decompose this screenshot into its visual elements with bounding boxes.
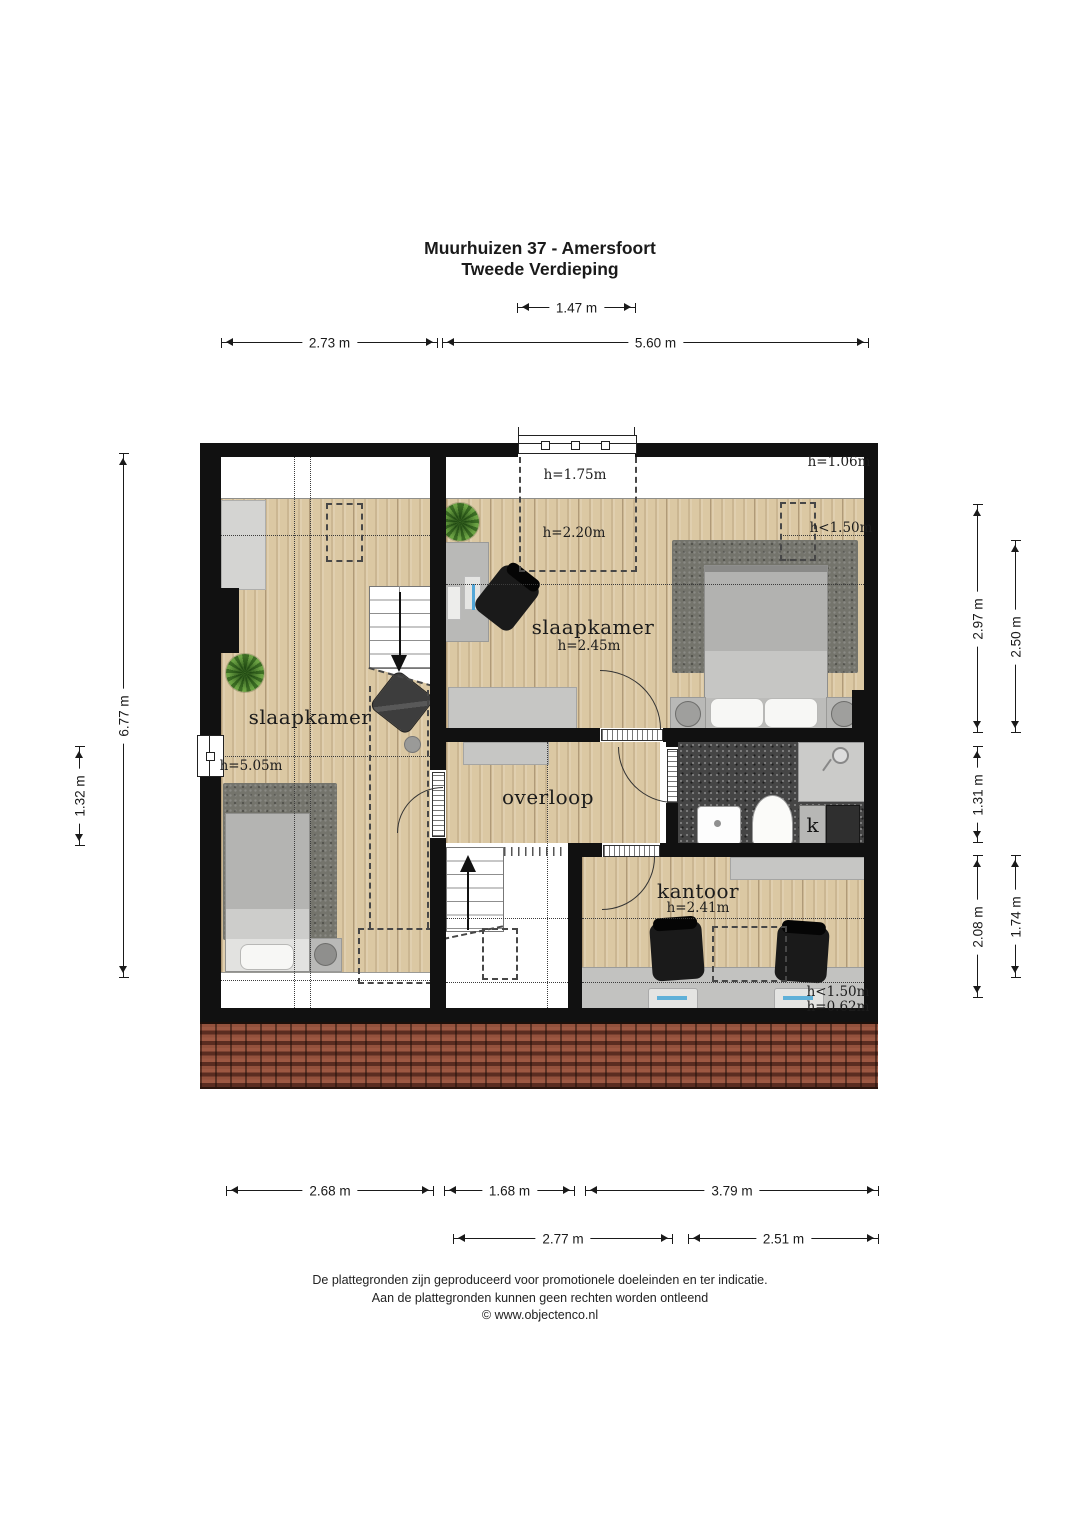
stairs-down-arrow-line [399,592,401,656]
dimension-bottom-stairwell: 1.68 m [445,1190,574,1191]
room-label-landing: overloop [502,785,594,809]
void-dashed-box [482,928,518,980]
disclaimer-line1: De plattegronden zijn geproduceerd voor … [0,1272,1080,1290]
plant-icon [226,654,264,692]
wall-divider-lower [430,838,446,1022]
wall-top-left [200,443,518,457]
dimension-bottom-office: 3.79 m [586,1190,878,1191]
door-leaf [603,845,660,857]
toilet [752,795,793,845]
closet-dark [826,805,860,845]
room-label-bedroom-left: slaapkamer [249,705,372,729]
roofline-dotted [294,457,295,1010]
balustrade-ticks [504,847,566,856]
dormer-window [518,435,637,454]
floorplan-page: Muurhuizen 37 - Amersfoort Tweede Verdie… [0,0,1080,1527]
pillow [240,944,294,970]
laptop [648,988,698,1010]
dimension-label: 1.31 m [971,767,986,822]
office-dashed-box [712,926,787,982]
wardrobe [221,500,266,590]
plant-icon [441,503,479,541]
wall-bathroom-bottom [660,843,878,857]
disclaimer: De plattegronden zijn geproduceerd voor … [0,1272,1080,1325]
dimension-label: 1.32 m [73,768,88,823]
height-office: h=2.41m [667,900,730,916]
desk-paper [447,586,461,620]
wall-left-upper [200,443,221,735]
dimension-label: 2.08 m [971,899,986,954]
pillow [710,698,764,728]
page-title: Muurhuizen 37 - Amersfoort Tweede Verdie… [0,238,1080,280]
wall-divider-upper [430,443,446,770]
dimension-label: 2.73 m [302,336,357,351]
height-low-office: h<1.50m [807,984,870,1000]
headroom-dotted [446,918,568,919]
dimension-right-bathroom: 1.31 m [977,747,978,842]
height-zone: h=2.20m [543,525,606,541]
floor-knob [404,736,421,753]
dimension-label: 1.74 m [1009,889,1024,944]
height-low-bedroom: h<1.50m [810,520,873,536]
title-floor: Tweede Verdieping [0,259,1080,280]
bed-duvet [226,814,309,910]
clock-icon [675,701,701,727]
roofline-dotted [310,457,311,1010]
dimension-label: 2.50 m [1009,609,1024,664]
dimension-left-total: 6.77 m [123,454,124,977]
chimney-dashed [326,503,363,562]
height-bedroom-right: h=2.45m [558,638,621,654]
dimension-bottom-bedroom: 2.68 m [227,1190,433,1191]
dimension-label: 2.68 m [302,1184,357,1199]
dimension-label: 3.79 m [704,1184,759,1199]
closet-label: k [806,813,818,837]
dimension-top-left: 2.73 m [222,342,437,343]
wall-pier [852,690,864,728]
wall-left-lower [200,775,221,1022]
disclaimer-line2: Aan de plattegronden kunnen geen rechten… [0,1290,1080,1308]
disclaimer-line3: © www.objectenco.nl [0,1307,1080,1325]
dimension-label: 2.51 m [756,1232,811,1247]
wall-bottom [200,1008,878,1022]
headroom-dotted [582,982,864,983]
stairs-up-arrow-icon [460,847,476,872]
void-dashed-box [358,928,432,984]
door-leaf [601,729,663,741]
closet-k: k [799,805,826,845]
wall-pier [221,588,239,653]
height-knee-office: h=0.62m [807,999,870,1015]
pillow [764,698,818,728]
bed-fold [226,909,309,939]
dimension-bottom-bathroom: 2.51 m [689,1238,878,1239]
height-top-right: h=1.06m [808,454,871,470]
wall-bathroom-left-a [666,728,678,747]
sink-drain-icon [714,820,721,827]
dimension-bottom-landing: 2.77 m [454,1238,672,1239]
dimension-label: 6.77 m [117,688,132,743]
landing-shelf [463,742,549,765]
office-shelf [730,857,866,880]
dimension-label: 2.97 m [971,591,986,646]
laptop-screen [657,996,687,1000]
headroom-dotted [221,756,430,757]
dimension-top-dormer: 1.47 m [518,307,635,308]
dimension-right-bedroom-inner: 2.50 m [1015,541,1016,732]
shower-head-icon [832,747,849,764]
dimension-label: 1.47 m [549,301,604,316]
sideboard [448,687,577,729]
height-bedroom-left: h=5.05m [220,758,283,774]
room-label-bedroom-right: slaapkamer [532,615,655,639]
dimension-right-office-inner: 1.74 m [1015,856,1016,977]
clock-icon [314,943,337,966]
dimension-top-right: 5.60 m [443,342,868,343]
headroom-dotted [582,918,864,919]
headroom-dotted [446,584,864,585]
dimension-right-bedroom-outer: 2.97 m [977,505,978,732]
dimension-right-office-outer: 2.08 m [977,856,978,997]
dimension-label: 5.60 m [628,336,683,351]
headroom-dotted [446,982,568,983]
dimension-label: 2.77 m [535,1232,590,1247]
dimension-left-window: 1.32 m [79,747,80,845]
wall-bedroom-right-bottom-b [663,728,864,742]
bed-fold [705,651,827,698]
stairs-up-arrow-line [467,864,469,930]
dimension-label: 1.68 m [482,1184,537,1199]
roofline-dotted [547,742,548,1010]
height-dormer: h=1.75m [544,467,607,483]
wall-bedroom-right-bottom-a [446,728,600,742]
title-address: Muurhuizen 37 - Amersfoort [0,238,1080,259]
roof-tiles [200,1022,878,1089]
wall-stairwell-right [568,843,582,1022]
office-chair [649,920,705,981]
